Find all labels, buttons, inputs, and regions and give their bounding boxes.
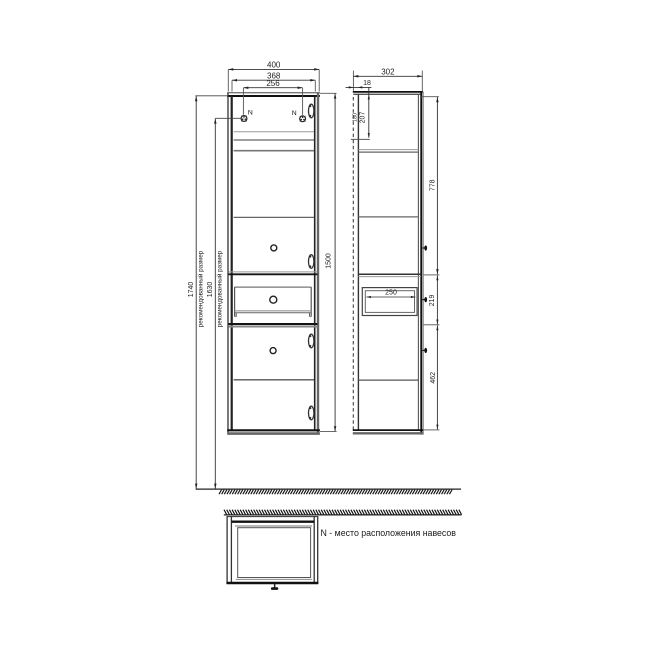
svg-text:219: 219 [429,294,436,306]
svg-text:302: 302 [381,67,395,76]
svg-text:462: 462 [430,372,437,384]
svg-text:1500: 1500 [326,253,333,269]
svg-text:рекомендованный размер: рекомендованный размер [215,250,223,327]
svg-text:N: N [292,110,297,117]
svg-text:1740: 1740 [188,282,195,298]
svg-text:256: 256 [266,79,280,88]
svg-text:рекомендованный размер: рекомендованный размер [197,250,205,327]
svg-text:1630: 1630 [207,282,214,298]
svg-text:778: 778 [429,179,436,191]
svg-text:207: 207 [359,112,366,124]
svg-text:N: N [248,110,253,117]
svg-text:250: 250 [385,289,397,296]
svg-text:400: 400 [267,61,281,70]
svg-text:N - место расположения навесов: N - место расположения навесов [321,528,457,538]
svg-text:18: 18 [363,80,371,87]
svg-text:180: 180 [353,113,359,122]
